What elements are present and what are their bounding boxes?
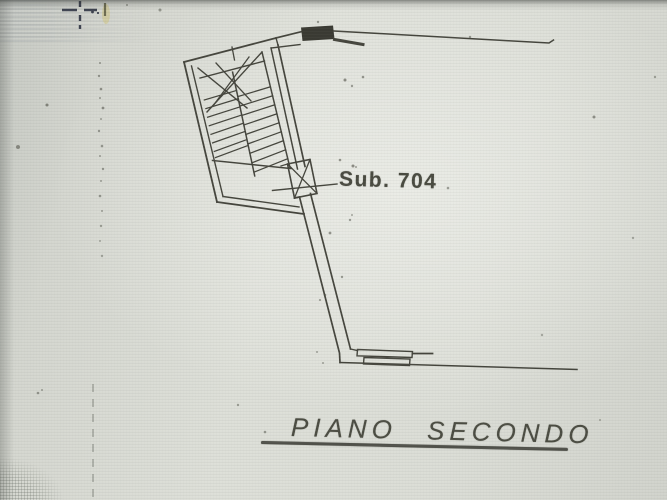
door-opening-symbol	[281, 160, 317, 199]
corridor-walls	[295, 194, 578, 370]
leader-line	[273, 184, 338, 191]
scanned-floorplan-photo: Sub. 704 PIANO SECONDO	[0, 0, 667, 500]
sub-unit-label: Sub. 704	[339, 168, 438, 195]
top-wall	[272, 26, 554, 49]
registration-cross-icon	[62, 1, 110, 29]
